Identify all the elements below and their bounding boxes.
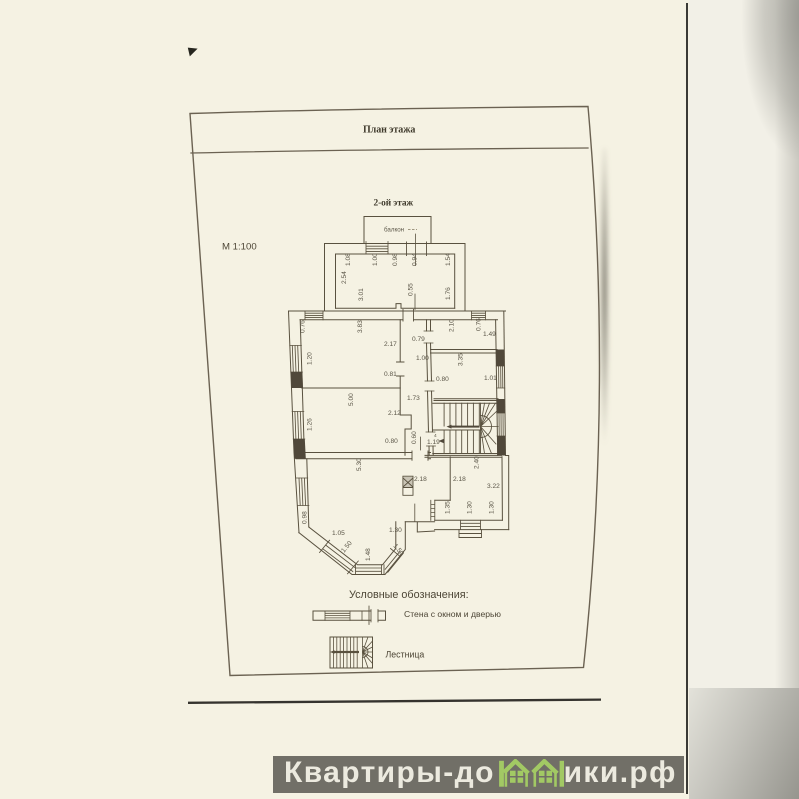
svg-text:1.19: 1.19 (427, 439, 440, 446)
svg-text:1.35: 1.35 (445, 501, 452, 514)
svg-text:0.80: 0.80 (436, 376, 449, 383)
svg-text:1.49: 1.49 (483, 331, 496, 338)
svg-text:План этажа: План этажа (363, 125, 415, 136)
svg-text:2-ой этаж: 2-ой этаж (374, 198, 414, 209)
svg-text:2.18: 2.18 (453, 476, 466, 483)
svg-text:2.18: 2.18 (414, 476, 427, 483)
svg-text:2.40: 2.40 (474, 456, 481, 469)
svg-text:балкон: балкон (384, 227, 404, 234)
svg-text:0.60: 0.60 (411, 431, 418, 444)
svg-text:0.98: 0.98 (302, 511, 309, 524)
svg-text:1.01: 1.01 (484, 375, 497, 382)
svg-text:0.81: 0.81 (384, 371, 397, 378)
svg-text:0.98: 0.98 (392, 253, 399, 266)
svg-text:3.22: 3.22 (487, 483, 500, 490)
svg-text:0.94: 0.94 (412, 253, 419, 266)
svg-text:1.50: 1.50 (340, 540, 354, 555)
svg-text:1.30: 1.30 (389, 527, 402, 534)
svg-text:1.20: 1.20 (307, 352, 314, 365)
svg-text:1.00: 1.00 (372, 253, 379, 266)
svg-text:0.55: 0.55 (408, 283, 415, 296)
svg-text:2.12: 2.12 (388, 410, 401, 417)
svg-text:0.76: 0.76 (300, 320, 307, 333)
svg-text:2.17: 2.17 (384, 341, 397, 348)
svg-text:1.05: 1.05 (332, 530, 345, 537)
svg-text:1.76: 1.76 (445, 287, 452, 300)
svg-text:М 1:100: М 1:100 (222, 242, 257, 253)
svg-text:0.76: 0.76 (476, 318, 483, 331)
svg-text:3.01: 3.01 (358, 288, 365, 301)
svg-text:1.48: 1.48 (365, 548, 372, 561)
svg-text:2.10: 2.10 (449, 319, 456, 332)
svg-text:1.54: 1.54 (445, 253, 452, 266)
svg-text:3.35: 3.35 (458, 353, 465, 366)
svg-text:1.00: 1.00 (416, 355, 429, 362)
svg-text:2.54: 2.54 (341, 271, 348, 284)
svg-text:1.50: 1.50 (391, 543, 405, 558)
svg-text:1.26: 1.26 (307, 418, 314, 431)
svg-text:Условные обозначения:: Условные обозначения: (349, 589, 469, 601)
svg-text:4: 4 (434, 433, 437, 439)
svg-text:Лестница: Лестница (386, 650, 425, 660)
svg-text:5.00: 5.00 (348, 393, 355, 406)
svg-text:1.73: 1.73 (407, 395, 420, 402)
svg-text:1.30: 1.30 (489, 501, 496, 514)
svg-text:0.79: 0.79 (412, 336, 425, 343)
svg-text:1.30: 1.30 (467, 501, 474, 514)
svg-text:5.30: 5.30 (356, 458, 363, 471)
svg-text:3.83: 3.83 (357, 320, 364, 333)
svg-text:Стена с окном и дверью: Стена с окном и дверью (404, 609, 501, 619)
svg-text:1.08: 1.08 (345, 253, 352, 266)
svg-text:0.80: 0.80 (385, 438, 398, 445)
